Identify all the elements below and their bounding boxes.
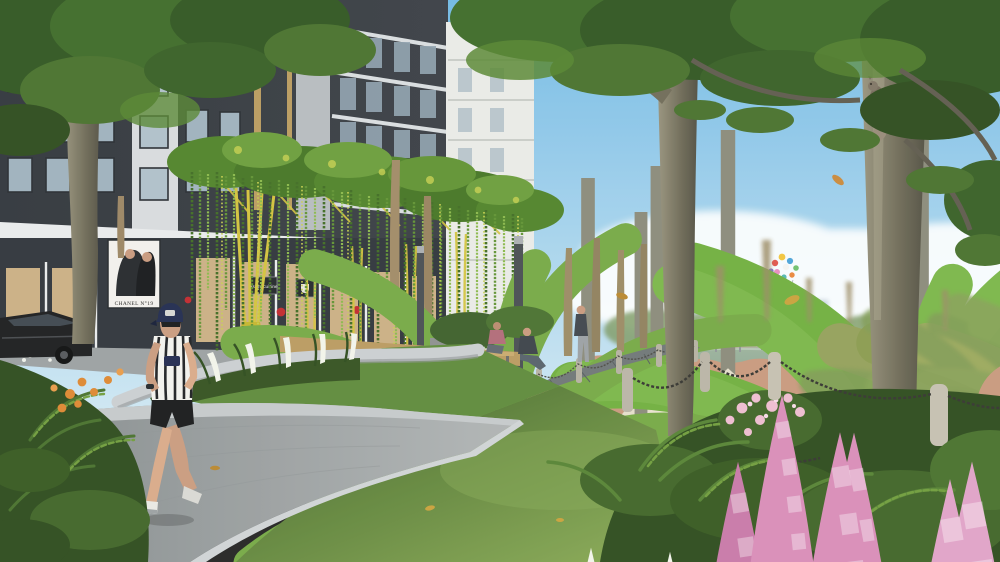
light-overlay (0, 0, 1000, 562)
rendered-scene: CHANEL N°19 Asian Cuisine (0, 0, 1000, 562)
